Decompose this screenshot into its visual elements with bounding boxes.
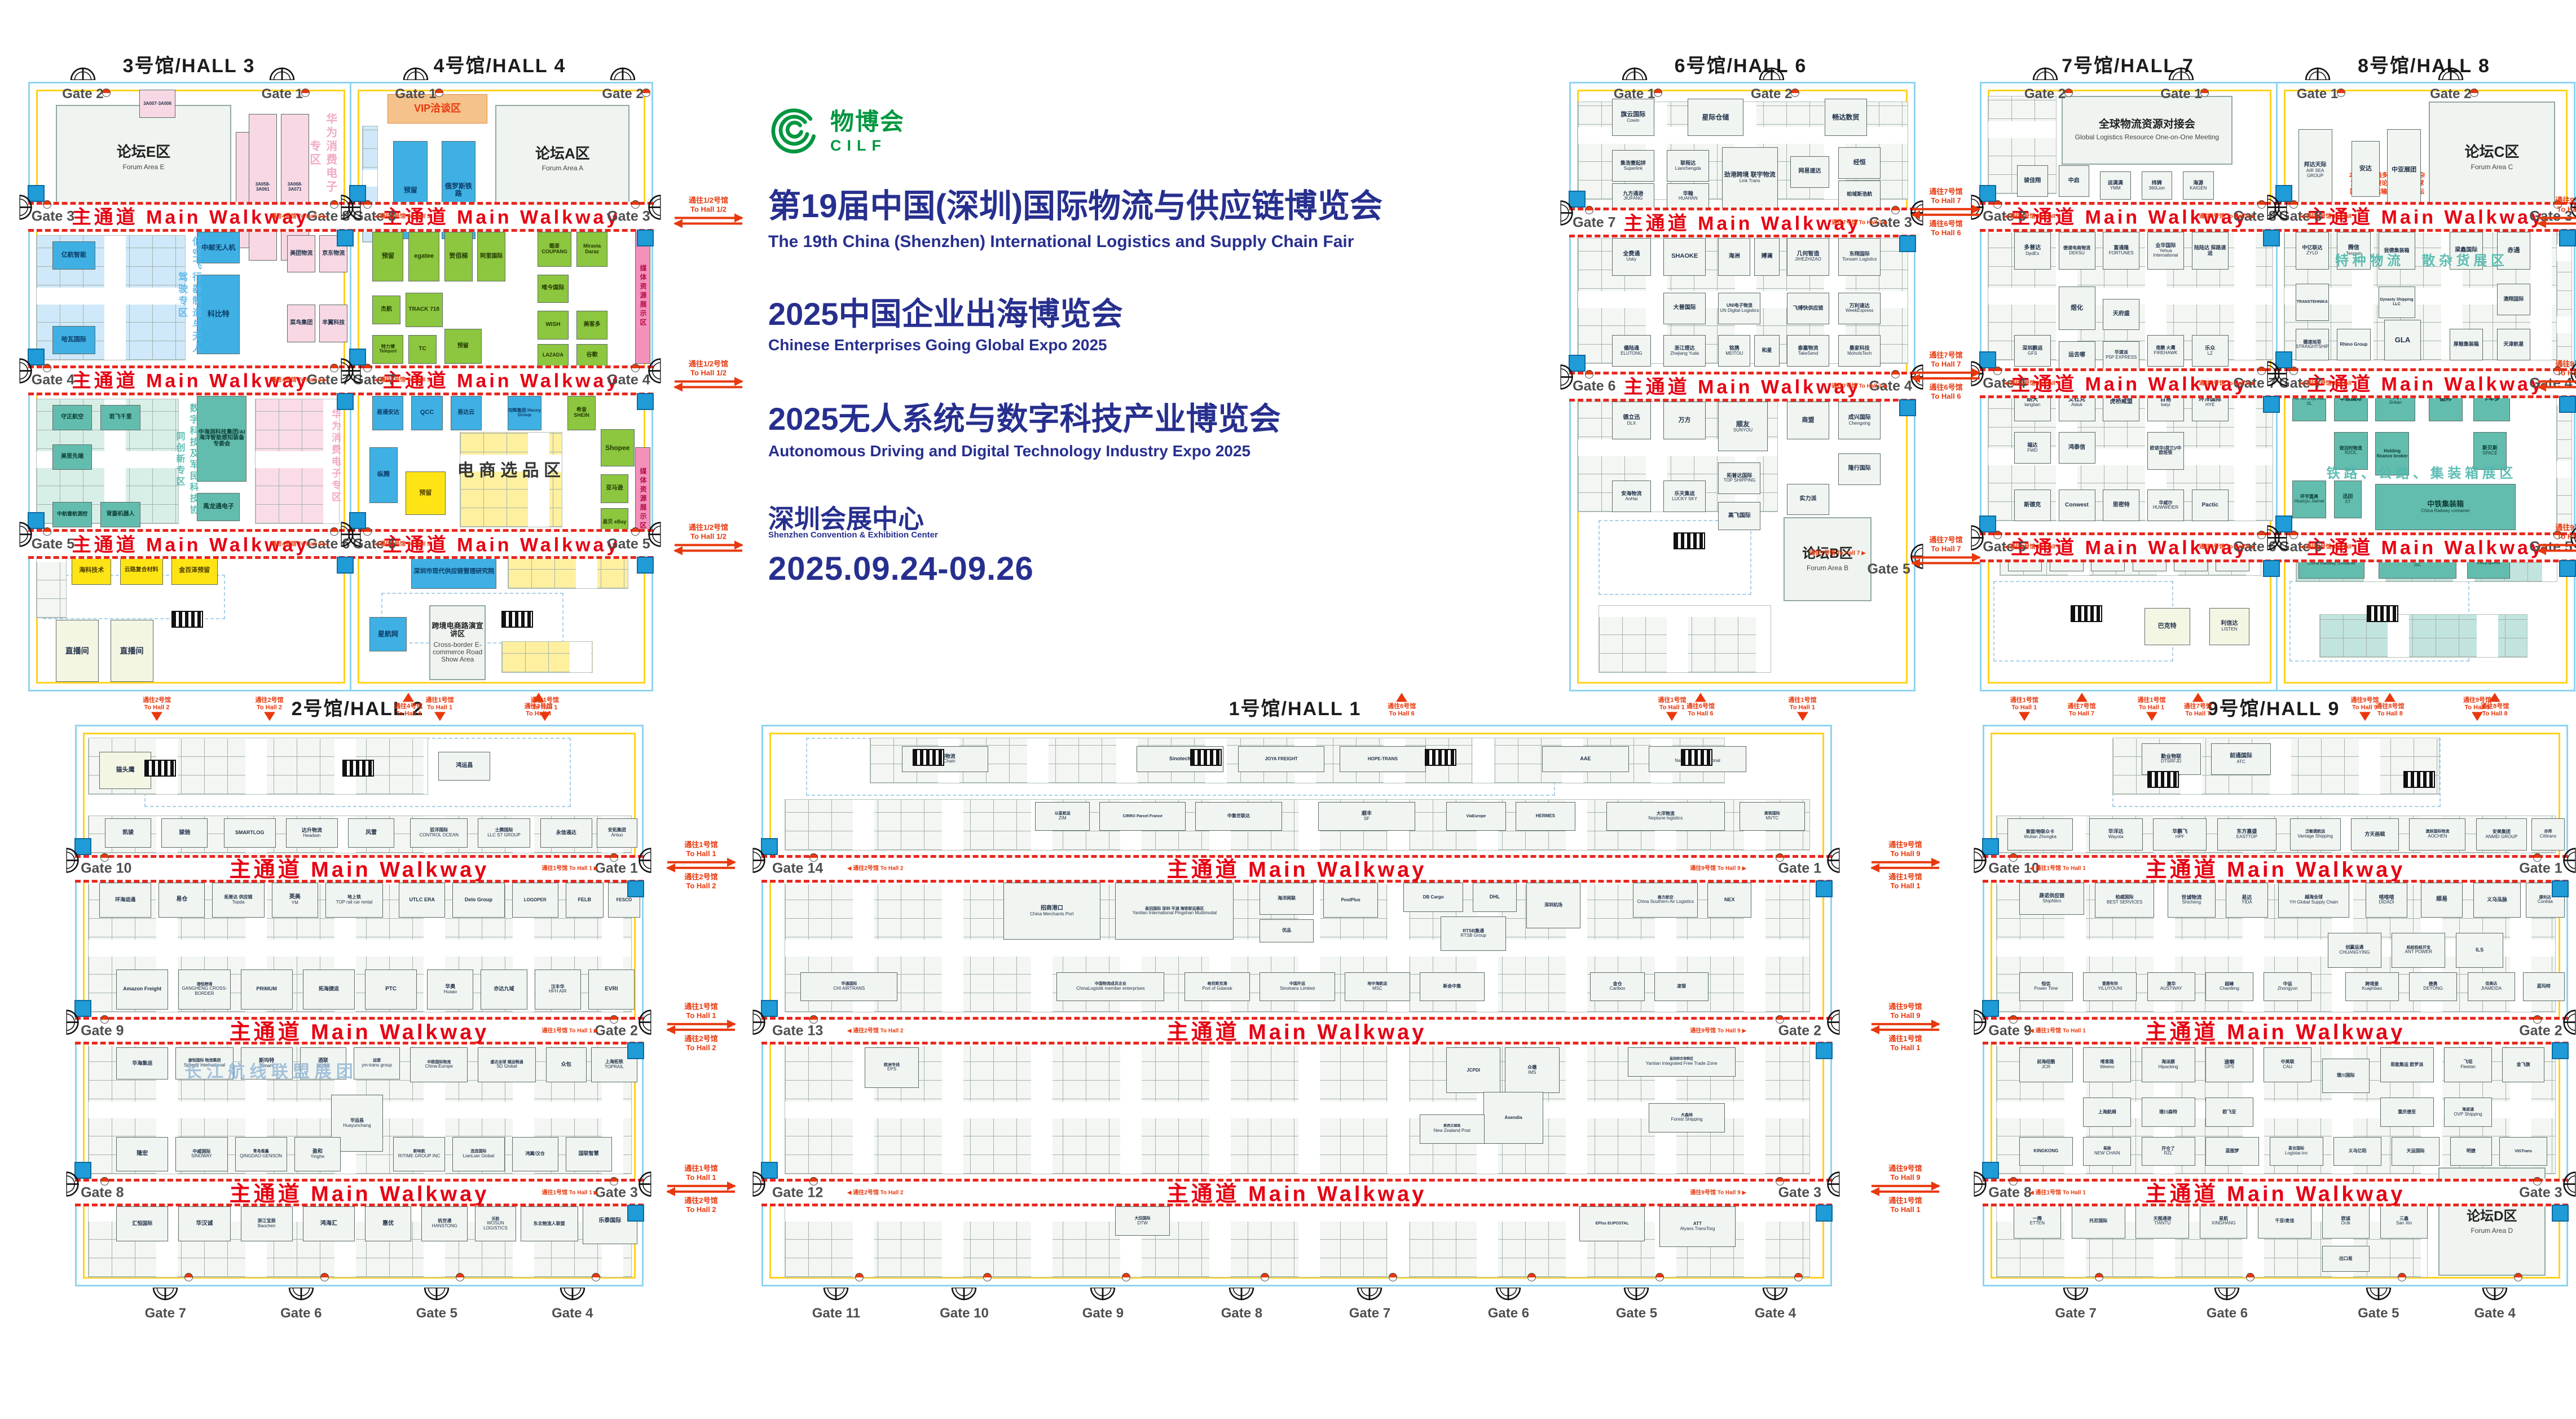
main-walkway: 主通道 Main WalkwayGate 7Gate 3通往7号馆 To Hal… — [1569, 208, 1916, 237]
hall-hall1: 英展物流MecChainSinotechJOYA FREIGHTHOPE-TRA… — [761, 725, 1832, 1286]
booth-name-zh: 千亚/麦佳 — [2275, 1219, 2294, 1224]
booth: 中航雷航测控 — [52, 502, 92, 527]
main-walkway: 主通道 Main WalkwayGate 8Gate 3◀ 通往1号馆 To H… — [1983, 1179, 2568, 1207]
booth-name-zh: JOYA FREIGHT — [1265, 757, 1298, 762]
main-walkway-label: 主通道 Main Walkway — [761, 1176, 1832, 1207]
booth-name-zh: Holding finance broker — [2376, 449, 2408, 459]
booth: 媒体资源展示区 — [635, 229, 651, 364]
booth-name-en: Yehua International — [2148, 249, 2183, 258]
gate-door-icon — [70, 67, 96, 80]
main-walkway: 主通道 Main WalkwayGate 4Gate 7◀ 通往6号馆 To H… — [1980, 368, 2279, 398]
booth: 骏佳翔 — [2017, 165, 2048, 197]
note-en: To Hall 2 — [143, 704, 171, 711]
connector-text: 通往1号馆 — [1872, 1196, 1939, 1205]
booth-name-zh: 深圳市现代供应链管理研究院 — [413, 569, 494, 575]
booth: 大森林Forest Shipping — [1649, 1103, 1724, 1132]
booth-name-zh: 中邮无人机 — [201, 244, 235, 252]
connector-text-en: To Hall 9 — [1872, 1011, 1939, 1020]
booth: 速恒国际 物流集团Speedy International — [175, 1047, 233, 1079]
booth-name-en: JIHEZHIZAO — [1795, 257, 1821, 262]
booth-name-en: HPF — [2176, 835, 2185, 840]
booth-name-zh: 俄罗斯铁路 — [442, 183, 475, 197]
gate-door-icon — [2563, 847, 2576, 873]
booth: Dynasty Shipping LLC — [2379, 287, 2415, 318]
booth-name-zh: 大普国际 — [1674, 305, 1696, 311]
booth: 业华国际Yehua International — [2147, 232, 2184, 270]
booth: 壹鹿有你YILUYOUNI — [2083, 972, 2137, 1002]
walkway-note: ◀ 通往3号馆 To Hall 3 — [374, 214, 430, 220]
connector-text-en: To Hall 6 — [1912, 228, 1980, 237]
connector-text: 通往1号馆 — [1872, 872, 1939, 882]
connector-text-en: To Hall 7 — [1912, 196, 1980, 205]
booth-name-zh: 环海运通 — [115, 897, 135, 903]
booth-name-en: LLC ST GROUP — [487, 833, 521, 838]
booth: 盐田国际 深圳·平湖 海铁联运展区Yantian International P… — [1115, 883, 1234, 940]
escalator-icon — [342, 760, 374, 777]
booth-name-zh: 跨境电商路演宣讲区 — [430, 622, 485, 638]
booth-name-zh: 赤通 — [2507, 248, 2520, 254]
booth: 搏澜 — [1754, 238, 1780, 276]
booth-name-en: Yinghe — [311, 1154, 325, 1160]
booth: 若飞千里 — [100, 405, 140, 430]
walkway-note: ◀ 通往3号馆 To Hall 3 — [374, 541, 430, 547]
gate-door-icon — [753, 1171, 766, 1197]
booth-name-zh: 天津航星 — [2503, 342, 2524, 347]
booth-name-zh: LOGOPER — [524, 898, 547, 903]
walkway-note: 通往1号馆 To Hall 1 ▶ — [542, 1189, 598, 1196]
gate-label-bottom: Gate 5 — [1616, 1306, 1657, 1321]
booth-name-en: NEW CHAIN — [2094, 1151, 2120, 1156]
hall-connector-note: 通往9号馆To Hall 9 — [2538, 196, 2576, 228]
booth-name-en: Zhongyun — [2278, 986, 2298, 991]
booth-name-en: MSC — [1372, 986, 1382, 991]
booth-name-en: CHI AIRTRANS — [833, 986, 865, 991]
booth-name-zh: 论坛C区 — [2465, 144, 2520, 160]
gate-door-icon — [1561, 364, 1574, 390]
door-block — [2263, 396, 2280, 413]
booth: 亿航智能 — [52, 241, 95, 270]
booth-name-zh: 煜化 — [2071, 305, 2083, 312]
booth: JCPDI — [1446, 1047, 1501, 1093]
booth-name-zh: VIGTrans — [2515, 1149, 2532, 1154]
booth: 思密特 — [2103, 490, 2139, 521]
booth: 均辉集团 Hecny Group — [508, 396, 542, 430]
booth-name-en: TakeSend — [1798, 351, 1818, 356]
booth: 大普国际 — [1663, 293, 1706, 324]
booth: 厚鲸集装箱 — [2450, 329, 2483, 360]
connector-arrow-right-icon — [675, 217, 742, 219]
hall-hall8: 论坛C区Forum Area C2025集装箱多式联运与散杂货行业发展论坛/第3… — [2276, 82, 2575, 691]
note-en: To Hall 6 — [1686, 710, 1715, 717]
connector-text-en: To Hall 1/2 — [675, 205, 742, 214]
gate-label: Gate 2 — [1778, 1023, 1821, 1039]
booth: 易仓 — [158, 883, 205, 917]
booth: 美团物流 — [287, 235, 315, 273]
gate-label: Gate 13 — [772, 1023, 823, 1039]
booth-name-en: Zhejiang Yuda — [1670, 351, 1699, 356]
booth-name-zh: 中启 — [2068, 178, 2080, 184]
booth-name-en: AnHai — [1625, 497, 1637, 502]
booth: 易达YIDA — [2226, 883, 2267, 917]
booth-name-zh: 媒体资源展示区 — [639, 468, 646, 531]
gate-label: Gate 3 — [32, 209, 74, 225]
main-walkway: 主通道 Main WalkwayGate 9Gate 2通往1号馆 To Hal… — [75, 1017, 644, 1045]
connector-arrow-left-icon — [1912, 562, 1980, 565]
booth: 麦合国际Logistar.inc — [2270, 1137, 2323, 1166]
exit-passage-note: 通往8号馆To Hall 8 — [2481, 691, 2509, 717]
booth-name-zh: EVRI — [605, 986, 618, 993]
note-zh: 通往3号馆 — [525, 703, 553, 710]
booth: RTSB集通RTSB Group — [1441, 916, 1506, 951]
main-walkway: 主通道 Main WalkwayGate 13Gate 2◀ 通往2号馆 To … — [761, 1017, 1832, 1045]
booth-name-zh: KINGKONG — [2033, 1149, 2058, 1154]
gate-label-top: Gate 1 — [395, 86, 436, 102]
gate-door-icon — [269, 67, 295, 80]
walkway-note: 通往4号馆 To Hall 4 ▶ — [271, 214, 327, 220]
booth-name-zh: 美思先端 — [61, 454, 83, 460]
hall-hall6: 旗云国际Cowin星际仓储畅达数贸集浩壹起拼Superlink联程达Lianch… — [1569, 82, 1916, 691]
booth-name-zh: UTLC ERA — [409, 897, 435, 903]
booth-name-en: YMM — [2110, 186, 2121, 191]
booth: 柏威国际BEST SERVICES — [2095, 883, 2154, 917]
booth-grid-field — [255, 399, 340, 524]
booth: 上海航姆 — [2083, 1098, 2131, 1127]
walkway-note: 通往9号馆 To Hall 9 ▶ — [1690, 1189, 1746, 1196]
booth-name-en: ANT POWER — [2405, 950, 2432, 955]
note-zh: 通往6号馆 — [1388, 703, 1416, 710]
booth: 中欧国际物流China-Europe — [410, 1047, 468, 1082]
note-zh: 通往7号馆 — [2184, 703, 2212, 710]
booth-name-zh: 丰翼科技 — [322, 320, 345, 327]
booth-name-en: ym-trans group — [362, 1063, 392, 1068]
booth: 华汉诚 — [178, 1206, 230, 1241]
booth: 中铁集装箱China Railway container — [2375, 484, 2516, 531]
booth: 德勇DEYONG — [2409, 972, 2457, 1002]
gate-label-bottom: Gate 7 — [145, 1306, 186, 1321]
note-en: To Hall 6 — [1388, 710, 1416, 717]
expo2-title-cn: 2025中国企业出海博览会 — [768, 289, 1123, 334]
exit-passage-note: 通往1号馆To Hall 1 — [1788, 697, 1816, 722]
booth-name-en: Cowin — [1627, 118, 1639, 124]
booth: 东方嘉盛EASTTOP — [2217, 818, 2276, 850]
booth-name-en: YILUYOUNI — [2098, 986, 2122, 991]
booth: 华奥Huaao — [427, 969, 473, 1010]
booth-name-en: Alyans TransTorg — [1680, 1227, 1715, 1232]
booth-name-en: Logistar.inc — [2285, 1151, 2308, 1156]
connector-text-en: To Hall 7 — [1912, 359, 1980, 368]
booth-name-zh: 万方 — [1679, 417, 1691, 424]
gate-door-icon — [1495, 1288, 1521, 1301]
note-zh: 通往6号馆 — [1686, 703, 1715, 710]
gate-door-icon — [753, 847, 766, 873]
gate-label-top: Gate 2 — [62, 86, 103, 102]
booth-name-zh: 和星 — [1762, 348, 1772, 354]
booth: 风雷 — [348, 818, 394, 848]
booth-name-zh: HERMES — [1536, 814, 1555, 819]
door-block — [637, 393, 654, 410]
booth-name-zh: WISH — [545, 322, 560, 328]
exit-passage-note: 通往4号馆To Hall 4 — [394, 691, 422, 717]
booth: 勤业物联DTSRFJD — [2142, 743, 2201, 775]
booth: 隆宏 — [116, 1137, 168, 1171]
connector-arrow-left-icon — [675, 386, 742, 389]
booth: DHL — [1473, 883, 1517, 912]
booth: 环宇嘉美Huanyu Jiamei — [2292, 481, 2326, 518]
booth: 浙江煜达Zhejiang Yuda — [1663, 335, 1706, 367]
logo-text-cn: 物博会 — [830, 103, 905, 137]
booth: 跨境堡Kuajinbao — [2345, 972, 2399, 1002]
gate-label-bottom: Gate 7 — [1349, 1306, 1390, 1321]
booth: 璟川国际 — [2322, 1059, 2370, 1093]
booth: 华洋达Wayota — [2089, 818, 2143, 850]
booth-name-en: Chengxing — [1849, 421, 1870, 426]
gate-door-icon — [1561, 200, 1574, 226]
gate-label-bottom: Gate 6 — [2207, 1306, 2248, 1321]
hall-connector-note: 通往1号馆To Hall 1通往2号馆To Hall 2 — [667, 840, 735, 890]
escalator-icon — [2403, 771, 2435, 788]
booth: 商盟 — [1787, 402, 1829, 439]
booth-name-en: JIAMEIDA — [2481, 986, 2502, 991]
booth: 中邮无人机 — [197, 232, 240, 263]
gate-marker-dot — [1791, 89, 1799, 97]
booth-name-zh: LAZADA — [543, 352, 563, 358]
booth-name-zh: 预留 — [419, 490, 431, 497]
booth: 海洋网联 — [1260, 883, 1314, 914]
booth-grid-field — [785, 1204, 1810, 1277]
booth-name-zh: 众包 — [561, 1062, 571, 1068]
booth: 亦达九域 — [481, 969, 527, 1010]
booth: 顺易 — [2421, 883, 2463, 917]
booth: 前通国际ATC — [2211, 743, 2270, 775]
booth-name-en: GANGHENG CROSS-BORDER — [179, 986, 230, 996]
exit-passage-note: 通往1号馆To Hall 1 — [2137, 697, 2165, 722]
booth: 易通安达 — [372, 396, 403, 430]
door-block — [627, 1042, 644, 1059]
booth-name-en: Forum Area A — [542, 165, 583, 172]
hall-connector-note: 通往9号馆To Hall 9 — [2538, 359, 2576, 391]
booth-name-zh: 中航雷航测控 — [57, 512, 87, 517]
connector-arrow-right-icon — [1872, 1185, 1939, 1187]
booth-name-zh: 背篓机器人 — [107, 512, 135, 518]
booth-name-en: Link Trans — [1740, 179, 1760, 184]
note-en: To Hall 1 — [1658, 704, 1686, 711]
booth-name-zh: 海洲 — [1729, 254, 1740, 260]
booth: 大洋物流Neptune logistics — [1606, 802, 1725, 831]
main-walkway: 主通道 Main WalkwayGate 12Gate 3◀ 通往2号馆 To … — [761, 1179, 1832, 1207]
walkway-marker-dot — [100, 853, 109, 862]
booth: 3A007·3A006 — [139, 90, 176, 118]
booth: 经恒 — [1838, 147, 1881, 179]
booth-name-en: Huayunchang — [343, 1123, 371, 1129]
connector-arrow-right-icon — [675, 544, 742, 547]
booth: 驭洋国际CONTROL OCEAN — [410, 818, 468, 848]
gate-label-top: Gate 1 — [2297, 86, 2338, 102]
booth: 深圳机场 — [1526, 883, 1581, 928]
connector-arrow-right-icon — [667, 861, 735, 863]
connector-text: 通往2号馆 — [667, 1034, 735, 1043]
booth-name-zh: 3A007·3A006 — [143, 102, 171, 107]
escalator-icon — [2071, 605, 2102, 622]
booth-name-en: San Xin — [2396, 1221, 2412, 1226]
booth: 易脉NEW CHAIN — [2083, 1137, 2131, 1166]
booth: 安达 — [2352, 141, 2379, 197]
booth-name-en: New Zealand Post — [1434, 1129, 1470, 1134]
booth-name-en: Wulian Zhongka — [2024, 835, 2057, 840]
booth-name-en: China Merchants Port — [1030, 912, 1073, 917]
connector-arrow-right-icon — [667, 1185, 735, 1187]
door-block — [2552, 880, 2569, 897]
note-en: To Hall 1 — [2010, 704, 2038, 711]
door-block — [627, 1205, 644, 1222]
booth-name-zh: 高飞国际 — [1728, 513, 1751, 519]
booth: 嗒嗒嗒DIDADI — [2366, 883, 2407, 917]
booth-name-en: Aiduk — [2071, 403, 2082, 408]
door-block — [2552, 1205, 2569, 1222]
gate-label-top: Gate 1 — [262, 86, 303, 102]
gate-door-icon — [2563, 1171, 2576, 1197]
booth: 深圳市现代供应链管理研究院 — [411, 555, 496, 589]
gate-marker-dot — [2064, 89, 2073, 97]
gate-door-icon — [20, 194, 33, 220]
booth: 中集世联达 — [1195, 802, 1282, 831]
walkway-marker-dot — [610, 853, 618, 862]
gate-door-icon — [341, 522, 354, 548]
main-walkway-label: 主通道 Main Walkway — [761, 852, 1832, 883]
main-walkway-label: 主通道 Main Walkway — [761, 1014, 1832, 1045]
connector-text-en: To Hall 9 — [2538, 368, 2576, 377]
gate-label: Gate 8 — [81, 1184, 124, 1201]
booth-name-zh: 永信通达 — [556, 830, 576, 836]
booth: 众穗IMS — [1505, 1047, 1560, 1093]
booth: CIRRO Parcel France — [1099, 802, 1186, 831]
booth: 东翔国际Tonsam Logistics — [1838, 238, 1881, 276]
booth: 中威国际SINOWAY — [175, 1137, 227, 1171]
booth: 华鹏飞HPF — [2153, 818, 2207, 850]
gate-door-icon — [1974, 847, 1987, 873]
booth-name-en: CAU — [2283, 1065, 2292, 1070]
exit-passage-note: 通往6号馆To Hall 6 — [1388, 691, 1416, 717]
booth-name-en: JCR — [2042, 1065, 2051, 1070]
booth-name-zh: Dynasty Shipping LLC — [2379, 298, 2415, 306]
booth: 劲港跨境 联宇物流Link Trans — [1722, 147, 1778, 209]
walkway-note: 通往8号馆 To Hall 8 ▶ — [2199, 380, 2256, 386]
gate-label: Gate 5 — [32, 536, 74, 552]
booth: 直播间 — [56, 620, 99, 682]
booth: 谷歌 — [576, 344, 607, 367]
booth: 柏域斯浩航 — [1838, 180, 1881, 209]
booth-name-zh: JCPDI — [1467, 1068, 1480, 1073]
booth-name-zh: 出口易 — [2339, 1257, 2353, 1262]
booth-name-en: langtian — [2024, 403, 2040, 408]
gate-marker-dot — [435, 89, 443, 97]
booth-name-en: Conlida — [2538, 900, 2553, 905]
booth: 拓海捷运 — [303, 969, 355, 1010]
booth-name-en: ANMEI GROUP — [2485, 835, 2517, 840]
gate-label: Gate 5 — [1867, 561, 1910, 578]
walkway-marker-dot — [1891, 370, 1900, 378]
gate-door-icon — [2032, 67, 2058, 80]
booth: 澳华AUSTWAY — [2147, 972, 2195, 1002]
expo3-title-en: Autonomous Driving and Digital Technolog… — [768, 442, 1250, 460]
booth: 煜化 — [2059, 287, 2095, 330]
booth: 蓝玛特 — [2523, 972, 2565, 1002]
booth-name-zh: 璟川国际 — [2337, 1073, 2355, 1078]
connector-arrow-right-icon — [1872, 861, 1939, 863]
booth-name-en: Port of Gdansk — [1202, 986, 1232, 991]
gate-label-top: Gate 2 — [1751, 86, 1792, 102]
booth-name-en: Kuajinbao — [2362, 986, 2382, 991]
connector-arrow-right-icon — [1912, 208, 1980, 210]
booth-name-zh: 谷歌 — [587, 352, 598, 359]
booth-name-zh: 蓝图梦 — [2226, 1149, 2239, 1154]
booth-name-zh: 凌银 — [1677, 984, 1686, 989]
booth-name-zh: GLA — [2395, 336, 2410, 344]
connector-text-en: To Hall 1 — [667, 849, 735, 858]
gate-label: Gate 5 — [607, 536, 650, 552]
door-block — [337, 230, 354, 246]
booth-name-en: RTSB Group — [1460, 933, 1486, 938]
gate-door-icon — [424, 1288, 450, 1301]
booth-name-en: Power Time — [2034, 986, 2058, 991]
booth-name-zh: 易贝 eBay — [602, 519, 626, 525]
walkway-note: 通往7号馆 To Hall 7 ▶ — [1831, 384, 1888, 390]
booth-name-zh: Miravia Daraz — [577, 244, 607, 254]
booth-name-en: Forest Shipping — [1671, 1117, 1703, 1122]
booth: 速喇GPS — [2205, 1047, 2253, 1082]
main-walkway: 主通道 Main WalkwayGate 5Gate 6◀ 通往6号馆 To H… — [1980, 532, 2279, 562]
booth: 中启 — [2059, 165, 2090, 197]
booth-name-zh: 易达云 — [457, 410, 474, 416]
booth: 几何智造JIHEZHIZAO — [1787, 238, 1829, 276]
booth-name-zh: 预留 — [382, 253, 394, 260]
note-en: To Hall 9 — [2350, 704, 2379, 711]
walkway-marker-dot — [1776, 853, 1784, 862]
door-block — [2552, 1042, 2569, 1059]
gate-door-icon — [2267, 194, 2280, 220]
booth-name-zh: VIP洽谈区 — [414, 103, 461, 114]
booth-name-en: LISTEN — [2221, 627, 2237, 632]
forum-area: 论坛C区Forum Area C — [2429, 102, 2556, 213]
arrow-up-icon — [2076, 693, 2087, 702]
exit-passage-note: 通往2号馆To Hall 2 — [143, 697, 171, 722]
booth: 恒信Power Time — [2019, 972, 2073, 1002]
walkway-note: ◀ 通往2号馆 To Hall 2 — [847, 866, 904, 872]
booth-name-zh: 璟川森特 — [2159, 1110, 2177, 1115]
booth-name-en: TOP SHIPPING — [1724, 478, 1756, 483]
main-walkway: 主通道 Main WalkwayGate 4Gate 7通往4号馆 To Hal… — [28, 365, 353, 395]
booth: 迅田XT — [2334, 481, 2362, 518]
booth: 中亿联达ZYLD — [2296, 232, 2330, 270]
booth: 守正航空 — [52, 405, 92, 430]
booth: 预留 — [444, 329, 482, 363]
booth: 安美集团ANMEI GROUP — [2476, 818, 2527, 850]
booth: 泛敏捷航运Vantage Shipping — [2290, 818, 2341, 850]
gate-marker-dot — [592, 1273, 600, 1281]
gate-label-top: Gate 1 — [1614, 86, 1655, 102]
booth-name-zh: 网易速达 — [1799, 169, 1821, 175]
booth-name-zh: Shopee — [605, 444, 629, 452]
booth: 杭世通HANSTONG — [421, 1206, 468, 1241]
connector-text-en: To Hall 2 — [667, 882, 735, 891]
booth-name-en: Global Logistics Resource One-on-One Mee… — [2075, 134, 2219, 141]
booth-name-zh: 骏驰 — [179, 830, 190, 836]
booth-name-en: YH Global Supply Chain — [2289, 900, 2338, 905]
service-area-outline — [1599, 520, 1752, 595]
note-zh: 通往9号馆 — [2350, 697, 2379, 704]
booth: 天津航星 — [2497, 329, 2531, 360]
booth-name-en: LUCKY SKY — [1672, 497, 1697, 502]
booth: 环海运通 — [99, 883, 151, 917]
